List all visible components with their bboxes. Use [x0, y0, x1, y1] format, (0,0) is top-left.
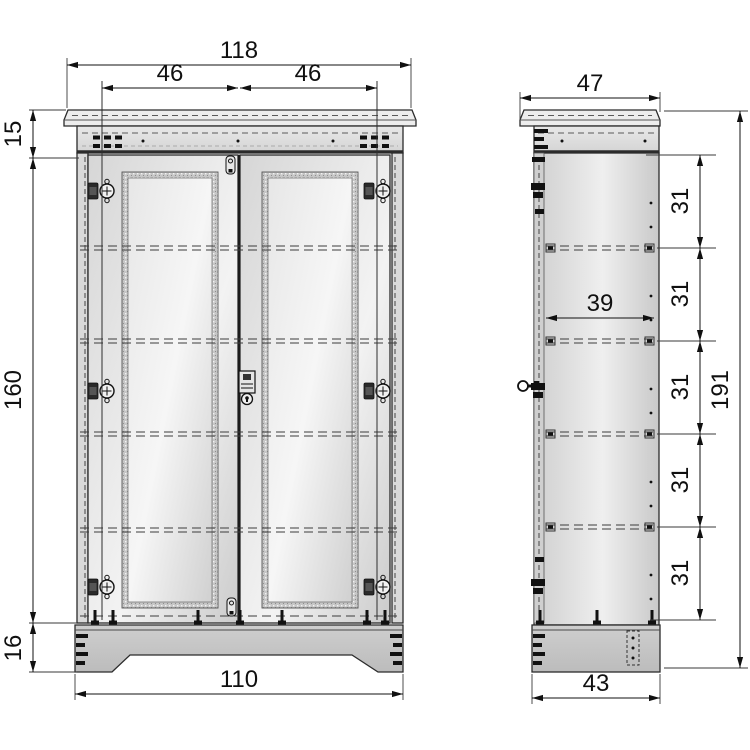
front-right-stile: [392, 153, 403, 623]
dim-label-16: 16: [0, 635, 27, 662]
dim-label-31-3: 31: [667, 374, 694, 401]
dimension-plinth-height: 16: [0, 623, 77, 672]
lock-icon: [239, 371, 255, 405]
side-plinth: [532, 625, 660, 672]
front-cornice: [64, 110, 416, 126]
dim-label-31-2: 31: [667, 281, 694, 308]
dim-label-39: 39: [587, 290, 614, 317]
dim-label-191: 191: [707, 370, 734, 410]
dim-label-110: 110: [220, 666, 258, 693]
dim-label-118: 118: [220, 37, 258, 64]
technical-drawing-canvas: 118 46 46 15 160 16: [0, 0, 750, 750]
side-body: [534, 153, 659, 625]
dimension-carcass-height: 160: [0, 158, 33, 623]
top-latch-icon: [226, 156, 235, 174]
right-door-panel: [268, 178, 352, 602]
side-cornice: [520, 110, 660, 126]
side-view: 47 39 31 31 31 31 31 19: [518, 70, 748, 704]
side-frieze: [534, 126, 659, 153]
dimension-right-door-width: 46: [240, 60, 377, 88]
dim-label-160: 160: [0, 370, 27, 410]
dimension-left-door-width: 46: [102, 60, 238, 88]
dimension-plinth-depth: 43: [532, 670, 660, 704]
front-plinth: [75, 625, 403, 672]
dim-label-31-4: 31: [667, 467, 694, 494]
front-left-stile: [77, 153, 88, 623]
dim-label-43: 43: [583, 670, 610, 697]
dim-label-46-left: 46: [157, 60, 184, 87]
key-icon: [518, 381, 539, 391]
front-frieze: [77, 126, 403, 153]
left-door-panel: [128, 178, 212, 602]
bottom-latch-icon: [227, 598, 236, 616]
dimension-plinth-width: 110: [75, 666, 403, 700]
wardrobe-dimension-drawing: 118 46 46 15 160 16: [0, 0, 750, 750]
dim-label-31-1: 31: [667, 188, 694, 215]
front-view: 118 46 46 15 160 16: [0, 37, 416, 700]
dim-label-15: 15: [0, 121, 27, 148]
dim-label-31-5: 31: [667, 560, 694, 587]
dim-label-46-right: 46: [295, 60, 322, 87]
dimension-total-width: 118: [67, 37, 411, 108]
dim-label-47: 47: [577, 70, 604, 97]
